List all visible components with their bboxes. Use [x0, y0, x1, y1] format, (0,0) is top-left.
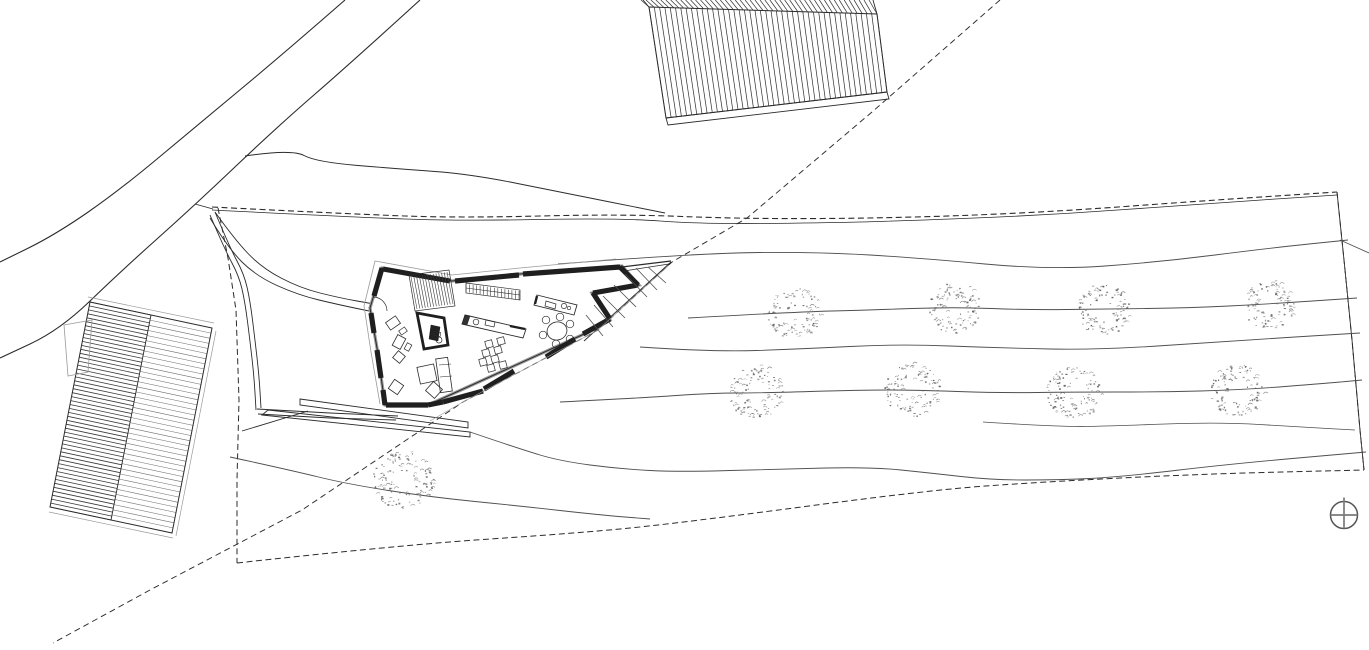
house-envelope	[370, 266, 639, 405]
barn-west-roof	[49, 297, 216, 538]
site-plan-canvas	[0, 0, 1369, 650]
north-marker	[1331, 498, 1358, 529]
site-plan-drawing	[0, 0, 1369, 650]
barn-north-roof	[641, 0, 889, 125]
